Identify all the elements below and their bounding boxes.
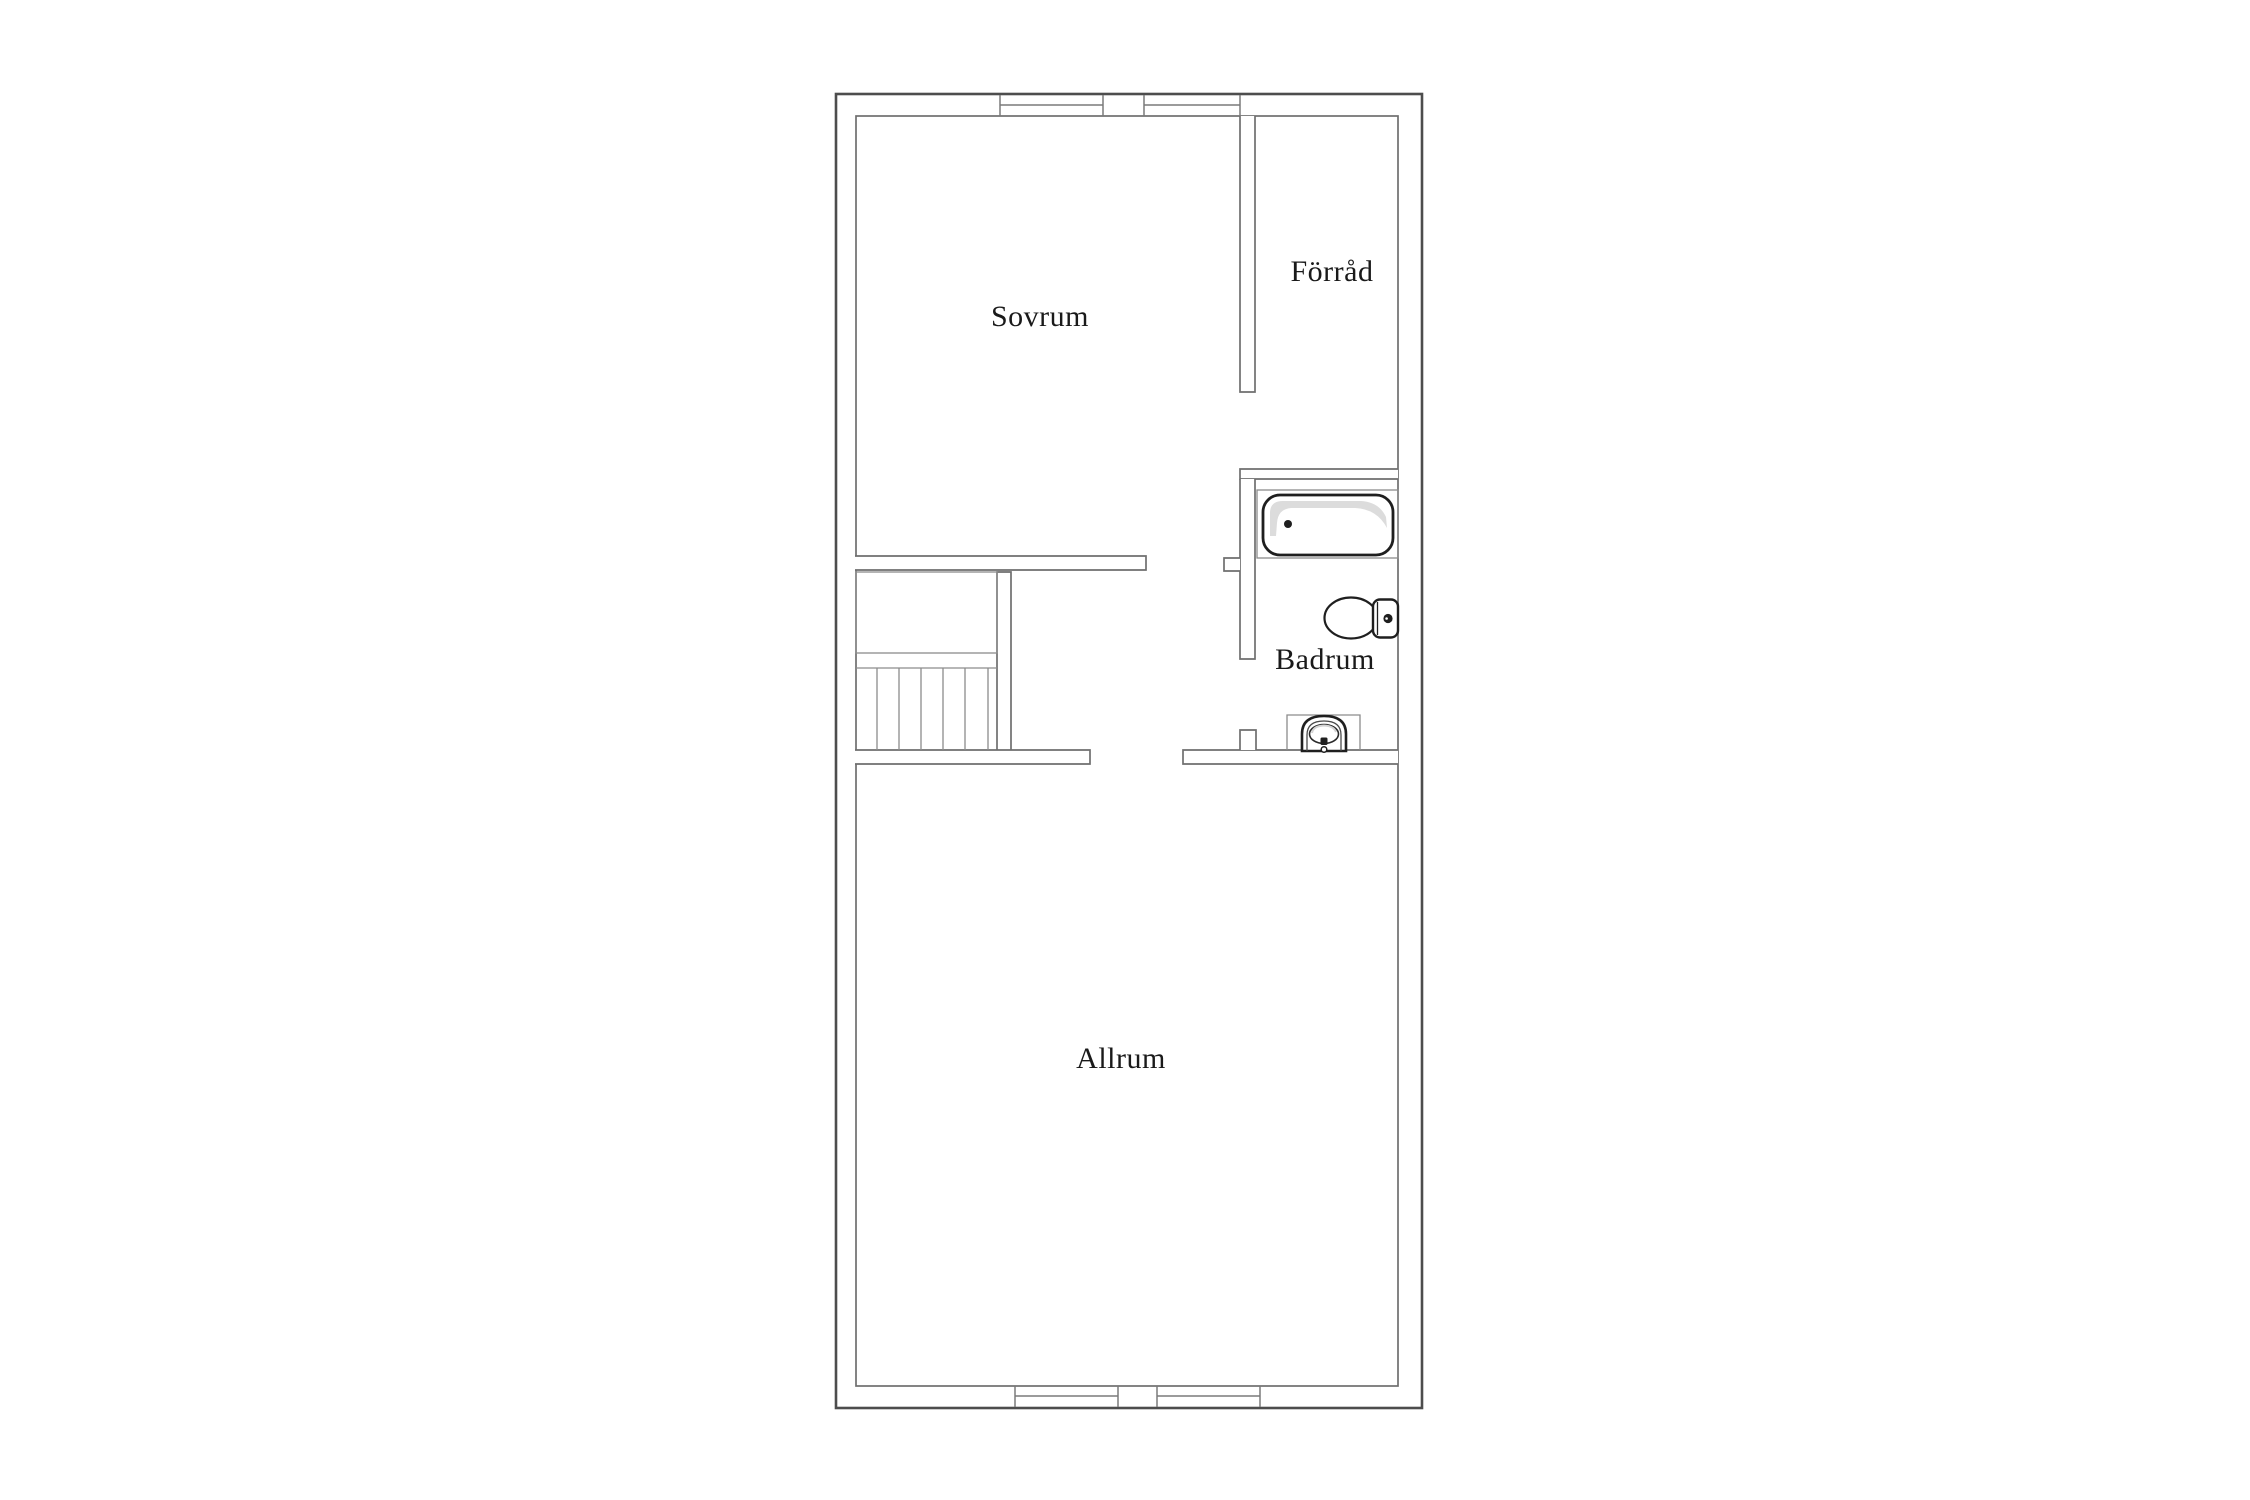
toilet-bowl (1325, 598, 1378, 639)
bottom-wall-windows (1015, 1386, 1260, 1407)
wall-sovrum-bottom (855, 556, 1146, 570)
floorplan-svg: Sovrum Förråd Badrum Allrum (0, 0, 2250, 1500)
toilet-flush (1383, 614, 1392, 623)
top-wall-windows (1000, 95, 1240, 116)
room-label-forrad: Förråd (1291, 255, 1374, 288)
wall-stairwell (997, 572, 1011, 750)
door-jamb-sovrum (1224, 558, 1240, 571)
toilet-flush-dot (1385, 617, 1388, 620)
closet-icon (856, 572, 997, 653)
toilet-icon (1325, 598, 1399, 639)
sink-icon (1287, 715, 1360, 752)
room-label-allrum: Allrum (1076, 1042, 1166, 1075)
wall-forrad-badrum (1240, 469, 1398, 479)
room-labels: Sovrum Förråd Badrum Allrum (991, 255, 1375, 1075)
wall-sovrum-forrad (1240, 116, 1255, 392)
sink-faucet (1321, 738, 1328, 746)
bathtub-icon (1257, 490, 1398, 558)
bathtub-drain (1284, 520, 1292, 528)
room-label-sovrum: Sovrum (991, 300, 1089, 333)
floorplan-page: Sovrum Förråd Badrum Allrum (0, 0, 2250, 1500)
wall-badrum-left (1240, 479, 1255, 659)
room-label-badrum: Badrum (1275, 643, 1375, 676)
door-jamb-badrum (1240, 730, 1256, 750)
closet-outline (856, 572, 997, 653)
stairs-icon (856, 668, 997, 750)
wall-allrum-top-left (855, 750, 1090, 764)
wall-allrum-top-right (1183, 750, 1398, 764)
sink-drain (1321, 747, 1327, 753)
